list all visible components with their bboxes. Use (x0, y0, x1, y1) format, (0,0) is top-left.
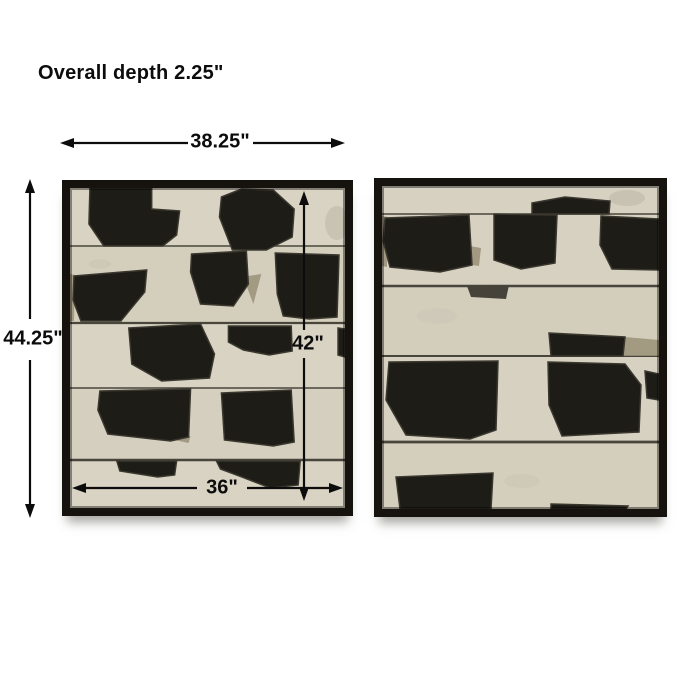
texture-spot (609, 190, 645, 206)
tan-accent (623, 337, 659, 356)
right-framed-print (374, 178, 667, 517)
art-height-label: 42" (292, 333, 324, 356)
texture-spot (89, 259, 111, 269)
ink-shape (383, 215, 472, 272)
ink-shape (275, 253, 339, 319)
overall-depth-label: Overall depth 2.25" (38, 62, 224, 85)
arrowhead-down (25, 504, 35, 518)
arrowhead-right (331, 138, 345, 148)
frame-height-label: 44.25" (3, 328, 63, 351)
right-artwork (382, 186, 659, 509)
ink-shape (645, 371, 659, 400)
ink-shape (386, 361, 498, 439)
ink-shape (219, 189, 294, 250)
ink-shape (600, 216, 659, 270)
arrowhead-up (25, 179, 35, 193)
ink-shape (549, 333, 625, 356)
ink-shape (548, 362, 641, 436)
frame-width-label: 38.25" (190, 131, 250, 154)
ink-shape (98, 389, 191, 441)
gray-shape (467, 285, 509, 299)
texture-spot (504, 474, 540, 488)
ink-shape (494, 214, 557, 269)
ink-shape (221, 390, 294, 446)
art-width-label: 36" (206, 477, 238, 500)
product-dimension-diagram: Overall depth 2.25" (0, 0, 700, 700)
arrowhead-left (60, 138, 74, 148)
texture-spot (417, 308, 457, 324)
ink-shape (191, 251, 249, 306)
ink-shape (396, 473, 493, 509)
